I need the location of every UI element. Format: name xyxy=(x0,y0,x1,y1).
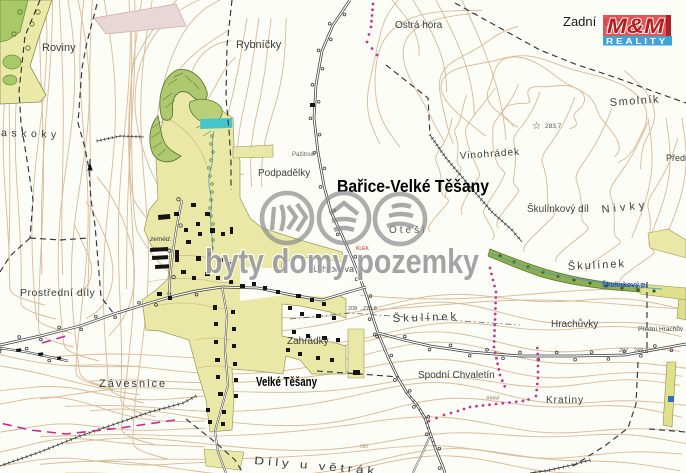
svg-text:Kratiny: Kratiny xyxy=(546,395,584,406)
svg-text:Škulínek: Škulínek xyxy=(393,310,460,325)
svg-text:Roviny: Roviny xyxy=(42,42,76,54)
svg-text:byty domy pozemky: byty domy pozemky xyxy=(205,243,479,281)
svg-text:Zadní: Zadní xyxy=(563,14,597,29)
svg-text:Předn: Předn xyxy=(666,153,686,163)
svg-text:Škulínkový díl: Škulínkový díl xyxy=(527,202,589,215)
svg-text:Velké Těšany: Velké Těšany xyxy=(256,374,318,389)
svg-text:REALITY: REALITY xyxy=(606,37,668,46)
svg-text:☆: ☆ xyxy=(532,121,541,132)
svg-text:####: #### xyxy=(486,396,500,402)
svg-text:249,3: 249,3 xyxy=(634,348,648,354)
svg-text:M&M: M&M xyxy=(607,15,665,38)
svg-text:080: 080 xyxy=(360,444,369,450)
svg-text:Hrachůvky: Hrachůvky xyxy=(551,318,598,330)
svg-text:Závesnice: Závesnice xyxy=(99,378,167,390)
svg-text:Zahrádky: Zahrádky xyxy=(287,336,329,347)
svg-text:Škulínkový p.: Škulínkový p. xyxy=(602,280,647,289)
svg-text:Přední Hrachův: Přední Hrachův xyxy=(638,325,684,333)
svg-text:askoky: askoky xyxy=(1,127,61,141)
svg-text:Podpadělky: Podpadělky xyxy=(258,168,310,179)
svg-text:Ostrá hora: Ostrá hora xyxy=(395,20,443,31)
svg-text:Spodní Chvaletín: Spodní Chvaletín xyxy=(418,370,495,381)
svg-text:zeměd.: zeměd. xyxy=(149,236,172,243)
svg-text:Pažitnok: Pažitnok xyxy=(292,152,316,158)
svg-text:Rybníčky: Rybníčky xyxy=(236,39,282,51)
svg-text:Prostřední díly: Prostřední díly xyxy=(20,287,95,299)
svg-text:207: 207 xyxy=(619,348,628,354)
svg-text:208: 208 xyxy=(348,306,357,312)
svg-text:Bařice-Velké Těšany: Bařice-Velké Těšany xyxy=(337,176,489,196)
svg-text:283,7: 283,7 xyxy=(545,123,562,130)
svg-text:278,8: 278,8 xyxy=(363,306,377,312)
